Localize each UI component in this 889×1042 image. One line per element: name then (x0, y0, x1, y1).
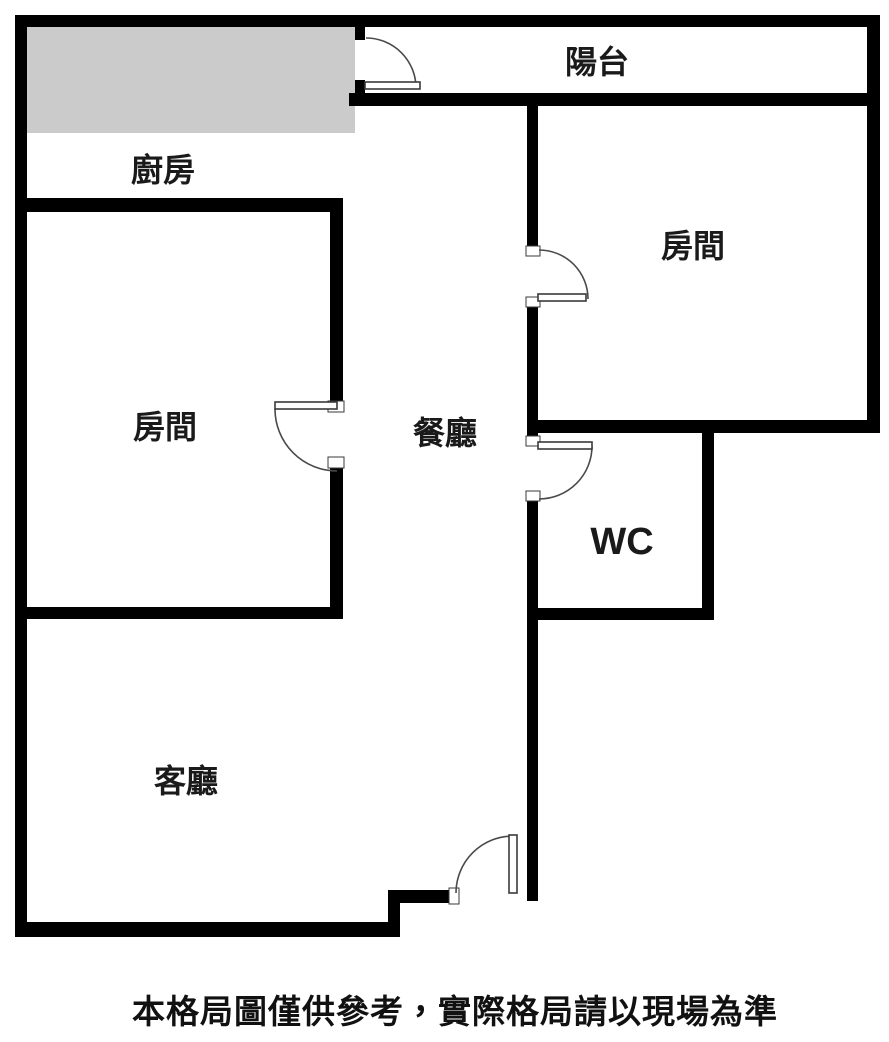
label-bedroom-left: 房間 (133, 409, 197, 445)
wall-center-lower (527, 500, 538, 901)
balcony-door-swing-arc (366, 38, 416, 88)
wall-balcony-bottom (349, 93, 880, 106)
wc-door-swing-arc (539, 446, 592, 499)
wall-top (15, 15, 880, 27)
bedroom-right-door-swing-arc (539, 250, 588, 299)
floor-plan-drawing: 陽台 廚房 房間 房間 餐廳 WC 客廳 本格局圖僅供參考，實際格局請以現場為準 (0, 0, 889, 1042)
bedroom-left-door-leaf (275, 402, 337, 409)
balcony-door (365, 38, 420, 89)
wall-balcony-door-hinge-stub (355, 80, 365, 93)
bedroom-left-door (275, 401, 344, 471)
wall-wc-right (702, 433, 714, 620)
wc-door (526, 436, 592, 501)
entrance-door-leaf (509, 835, 517, 893)
wall-balcony-door-stub (355, 27, 365, 40)
wall-bedroom-right-bottom (527, 420, 880, 433)
entrance-door (449, 835, 517, 904)
wc-door-jamb-bottom (526, 491, 540, 501)
wall-left (15, 15, 27, 937)
wall-kitchen-divider (15, 198, 343, 212)
wall-center-upper (527, 97, 538, 247)
wall-bottom-left (15, 922, 400, 937)
label-wc: WC (590, 521, 653, 563)
wall-bedroom-left-bottom (27, 607, 343, 619)
disclaimer-text: 本格局圖僅供參考，實際格局請以現場為準 (132, 993, 778, 1030)
label-kitchen: 廚房 (131, 152, 195, 188)
bedroom-right-door (526, 246, 588, 307)
bedroom-right-door-jamb-top (526, 246, 540, 256)
bedroom-right-door-leaf (538, 294, 586, 301)
bedroom-left-door-jamb-bottom (328, 457, 344, 468)
floor-plan-page: 陽台 廚房 房間 房間 餐廳 WC 客廳 本格局圖僅供參考，實際格局請以現場為準 (0, 0, 889, 1042)
wall-center-middle (527, 303, 538, 437)
kitchen-counter-block (27, 27, 355, 133)
wall-bottom-mid (388, 890, 455, 903)
entrance-door-swing-arc (456, 836, 513, 893)
balcony-door-leaf (365, 82, 420, 89)
wc-door-leaf (538, 442, 592, 449)
wall-bedroom-left-right-upper (330, 212, 343, 402)
wall-bedroom-left-right-lower (330, 468, 343, 619)
wall-right (867, 15, 880, 433)
label-dining: 餐廳 (413, 415, 477, 451)
label-balcony: 陽台 (565, 44, 629, 80)
entrance-door-jamb-left (449, 888, 459, 904)
label-bedroom-right: 房間 (661, 228, 725, 264)
label-living: 客廳 (154, 763, 218, 799)
wall-wc-bottom (538, 608, 714, 620)
